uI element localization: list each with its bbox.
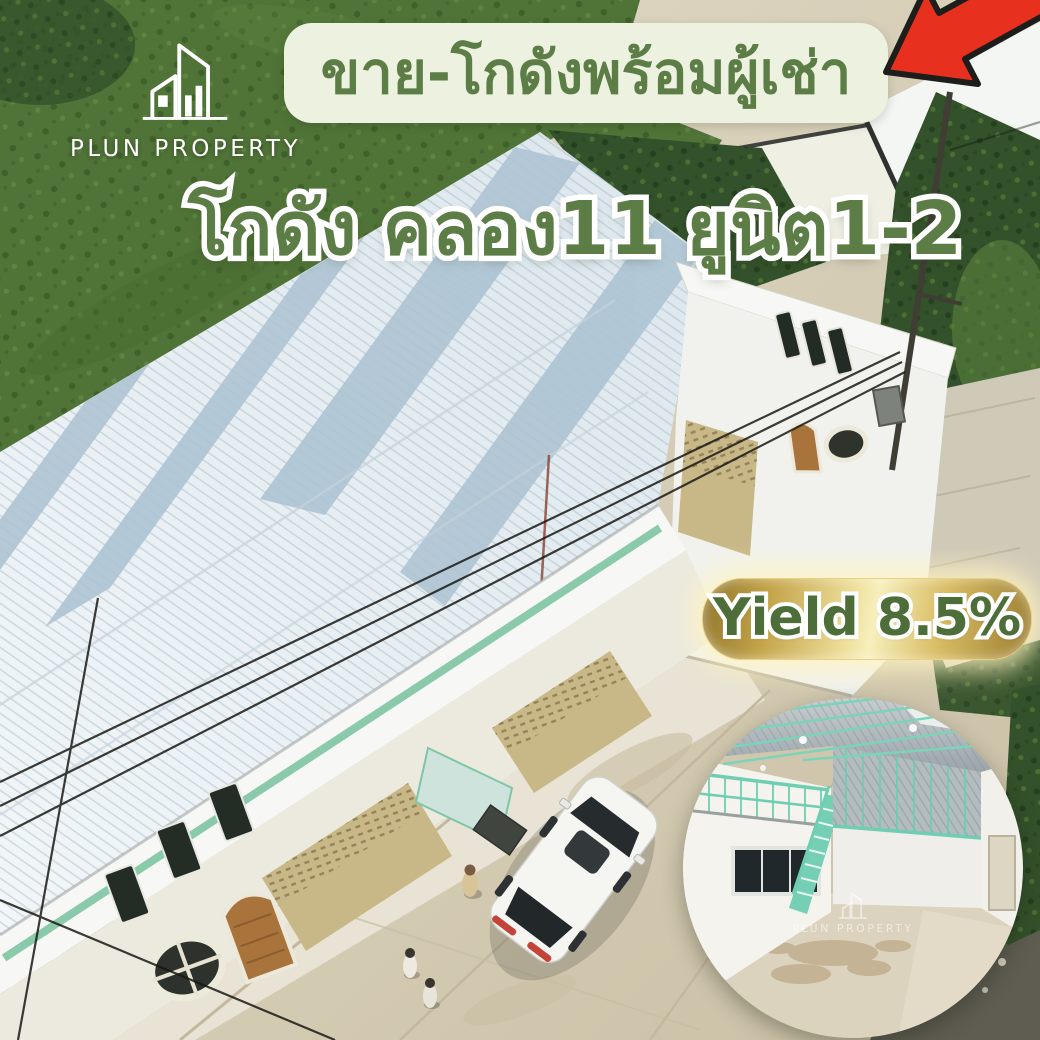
ad-canvas: PLUN PROPERTY ขาย-โกดังพร้อมผู้เช่า โกดั… bbox=[0, 0, 1040, 1040]
banner-text: ขาย-โกดังพร้อมผู้เช่า bbox=[321, 44, 852, 102]
back-wall-lower bbox=[833, 826, 981, 908]
yield-badge: Yield 8.5% Yield 8.5% bbox=[702, 578, 1032, 660]
transformer bbox=[873, 386, 905, 426]
yield-text: Yield 8.5% bbox=[713, 588, 1021, 648]
headline: โกดัง คลอง11 ยูนิต1-2 โกดัง คลอง11 ยูนิต… bbox=[110, 186, 1040, 272]
brand-name: PLUN PROPERTY bbox=[70, 136, 300, 162]
interior-inset-photo: PLUN PROPERTY bbox=[683, 698, 1023, 1038]
headline-text: โกดัง คลอง11 ยูนิต1-2 bbox=[188, 186, 962, 272]
brand-logo: PLUN PROPERTY bbox=[70, 30, 300, 162]
building-logo-icon bbox=[137, 30, 233, 130]
title-banner: ขาย-โกดังพร้อมผู้เช่า bbox=[284, 23, 888, 123]
door bbox=[989, 836, 1015, 910]
interior-photo bbox=[683, 698, 1023, 1038]
